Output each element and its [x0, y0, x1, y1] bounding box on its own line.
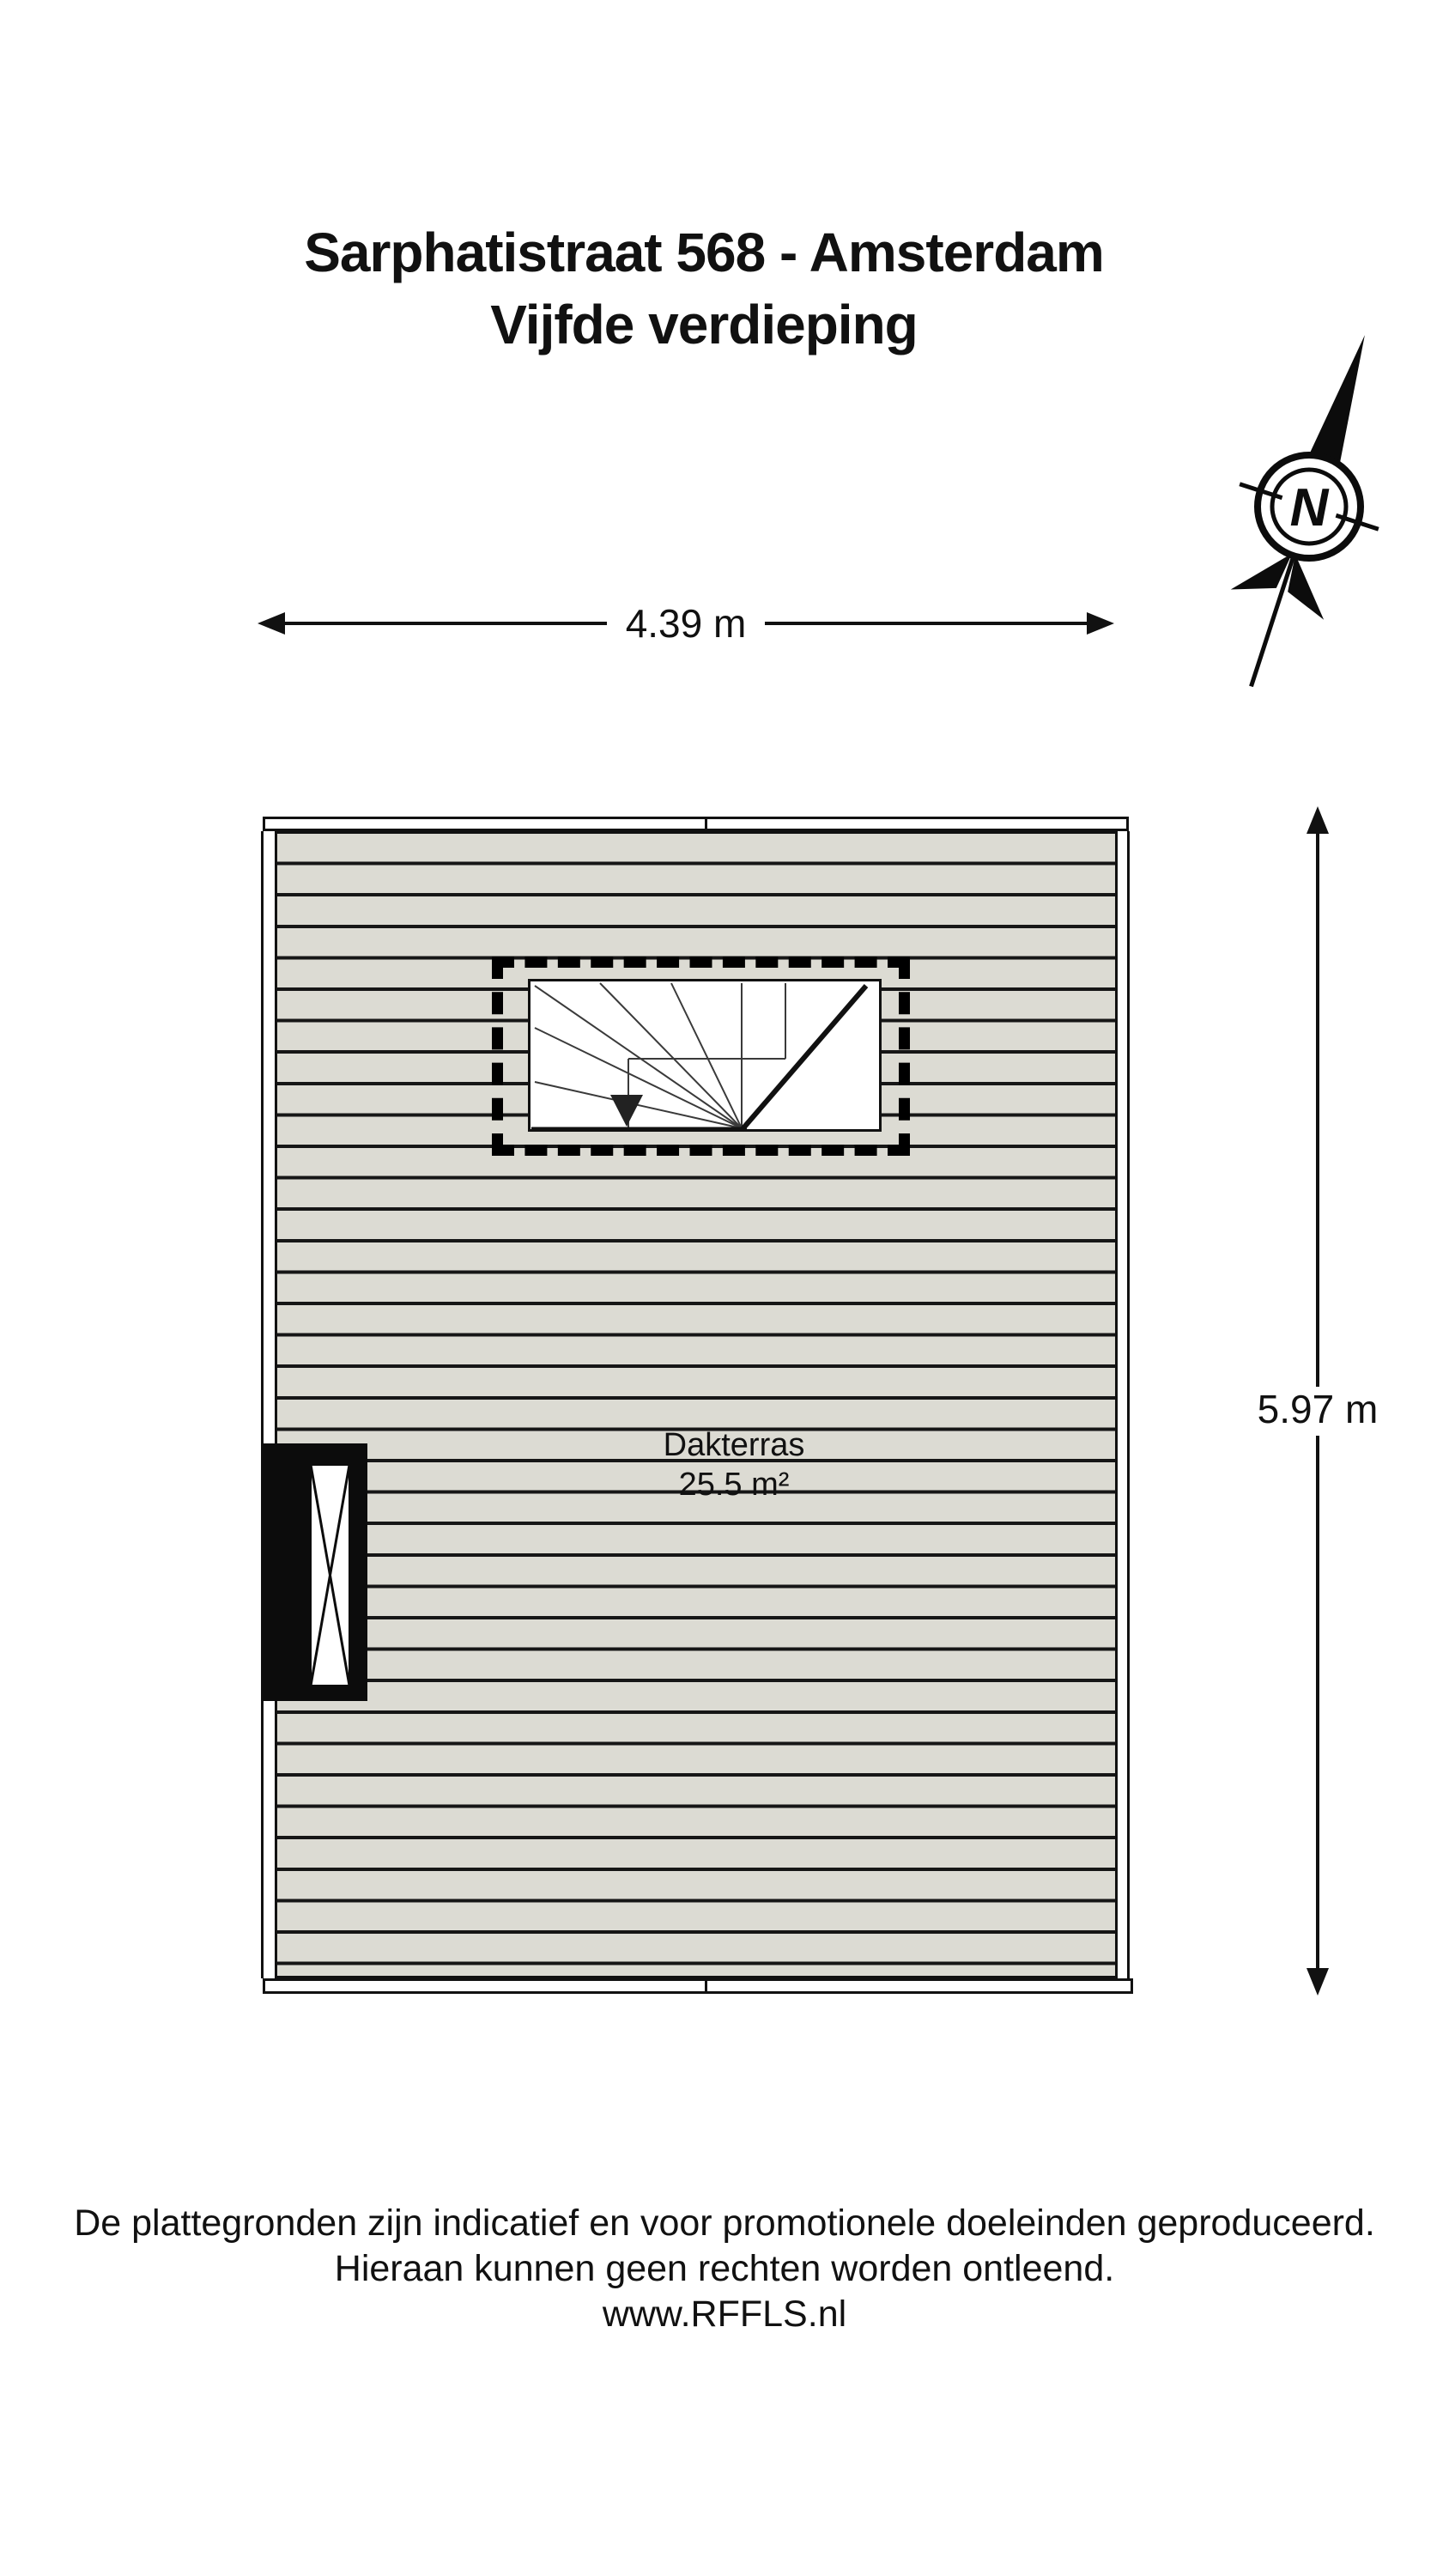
terrace-bottom-edge: [263, 1978, 1133, 1994]
terrace-right-wall: [1118, 831, 1130, 1978]
room-area: 25.5 m²: [515, 1465, 953, 1504]
page-title: Sarphatistraat 568 - Amsterdam Vijfde ve…: [0, 216, 1408, 361]
arrow-down-icon: [1307, 1968, 1329, 1996]
width-dimension-label: 4.39 m: [607, 600, 766, 647]
terrace-top-edge: [263, 817, 1129, 831]
staircase-icon: [528, 979, 882, 1132]
dimension-line: [285, 622, 607, 625]
dimension-line: [765, 622, 1087, 625]
title-floor: Vijfde verdieping: [0, 289, 1408, 361]
room-label: Dakterras 25.5 m²: [515, 1425, 953, 1504]
compass-n-label: N: [1290, 478, 1330, 538]
height-dimension-label: 5.97 m: [1197, 1386, 1438, 1432]
width-dimension: 4.39 m: [258, 603, 1114, 644]
roof-window-icon: [262, 1443, 367, 1701]
title-address: Sarphatistraat 568 - Amsterdam: [0, 216, 1408, 289]
edge-divider: [705, 817, 707, 831]
room-name: Dakterras: [515, 1425, 953, 1465]
website-url: www.RFFLS.nl: [0, 2292, 1449, 2337]
arrow-right-icon: [1087, 612, 1114, 635]
compass-north-icon: N: [1200, 302, 1410, 702]
arrow-left-icon: [258, 612, 285, 635]
disclaimer: De plattegronden zijn indicatief en voor…: [0, 2201, 1449, 2337]
disclaimer-line2: Hieraan kunnen geen rechten worden ontle…: [0, 2246, 1449, 2292]
terrace-left-wall: [261, 831, 275, 1978]
disclaimer-line1: De plattegronden zijn indicatief en voor…: [0, 2201, 1449, 2246]
edge-divider: [705, 1978, 707, 1994]
dimension-line: [1316, 830, 1319, 1387]
dimension-line: [1316, 1436, 1319, 1968]
